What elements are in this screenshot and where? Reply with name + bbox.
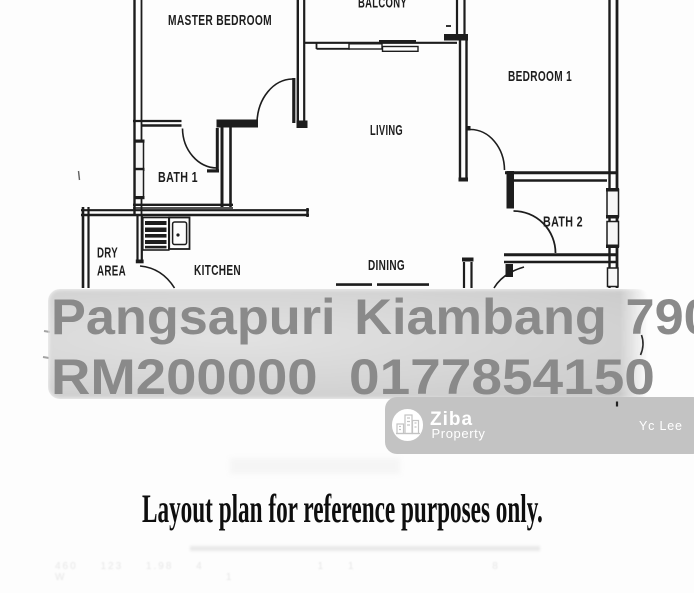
svg-text:BALCONY: BALCONY (358, 0, 407, 12)
svg-text:AREA: AREA (97, 263, 126, 280)
svg-text:BATH 1: BATH 1 (158, 169, 198, 186)
svg-text:BATH 2: BATH 2 (543, 214, 583, 231)
svg-text:BEDROOM 1: BEDROOM 1 (508, 68, 572, 85)
svg-text:DINING: DINING (368, 257, 405, 274)
svg-text:KITCHEN: KITCHEN (194, 262, 241, 279)
svg-text:LIVING: LIVING (370, 122, 403, 139)
svg-text:DRY: DRY (97, 245, 118, 262)
svg-text:MASTER BEDROOM: MASTER BEDROOM (168, 12, 272, 29)
